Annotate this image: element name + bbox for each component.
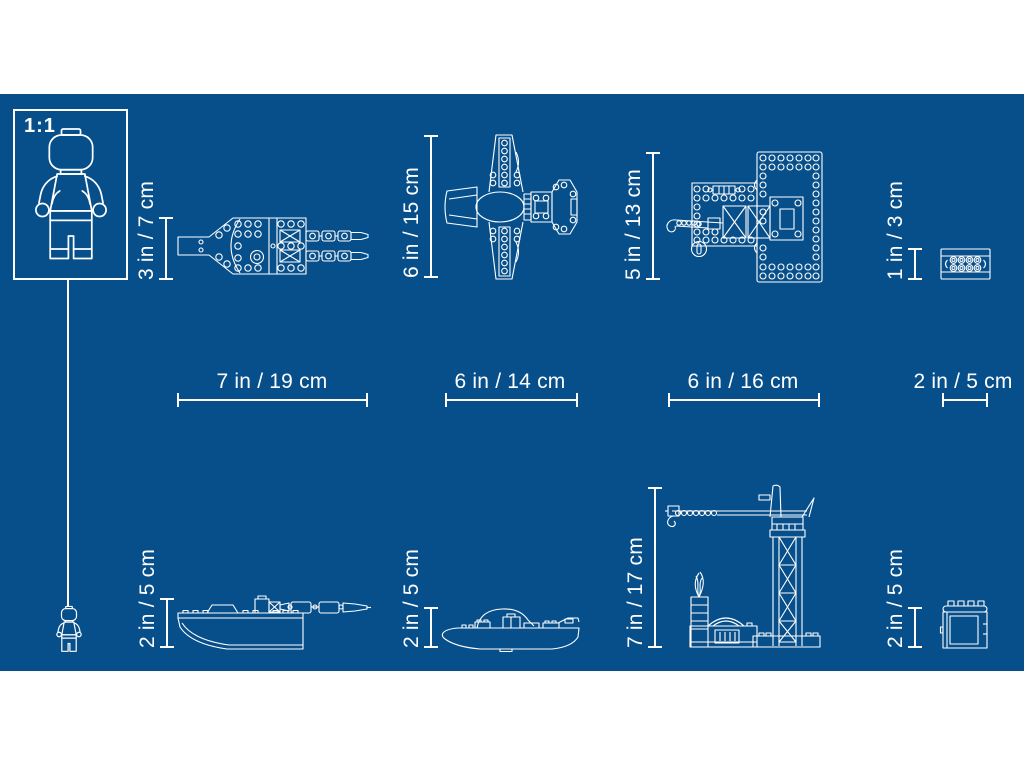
jet-width-measure-line: [445, 393, 578, 407]
crane-height-measure-line: [648, 487, 662, 648]
jet-height-label: 6 in / 15 cm: [399, 167, 425, 278]
brick-width-label: 2 in / 5 cm: [863, 370, 1024, 394]
submarine-height-label: 2 in / 5 cm: [399, 549, 425, 648]
platform-width-measure-line: [668, 393, 820, 407]
jet-width-label: 6 in / 14 cm: [410, 370, 610, 394]
crane-tower-side-view-drawing: [663, 484, 823, 649]
scale-box: 1:1: [13, 109, 128, 280]
jet-plane-top-view-drawing: [443, 132, 578, 282]
minifigure-icon: [32, 127, 110, 267]
crane-height-label: 7 in / 17 cm: [623, 537, 649, 648]
boat-side-view-drawing: [177, 596, 372, 658]
launch-platform-top-view-drawing: [663, 150, 823, 285]
shuttle-width-measure-line: [177, 393, 368, 407]
brick-height-measure-line: [908, 248, 922, 280]
boat-height-measure-line: [160, 598, 174, 648]
submarine-side-view-drawing: [440, 605, 585, 652]
dimensions-diagram: 1:1: [0, 0, 1024, 767]
shuttle-top-view-drawing: [177, 211, 372, 281]
platform-width-label: 6 in / 16 cm: [643, 370, 843, 394]
storage-box-side-view-drawing: [940, 598, 990, 650]
scale-leader-line: [67, 280, 69, 607]
submarine-height-measure-line: [424, 607, 438, 648]
minifigure-small-icon: [55, 606, 83, 654]
jet-height-measure-line: [424, 135, 438, 278]
boat-height-label: 2 in / 5 cm: [135, 549, 161, 648]
brick-width-measure-line: [942, 393, 988, 407]
storage-box-height-label: 2 in / 5 cm: [883, 549, 909, 648]
shuttle-height-label: 3 in / 7 cm: [134, 181, 160, 280]
platform-height-measure-line: [646, 152, 660, 280]
shuttle-height-measure-line: [159, 217, 173, 280]
shuttle-width-label: 7 in / 19 cm: [172, 370, 372, 394]
brick-height-label: 1 in / 3 cm: [883, 181, 909, 280]
storage-box-height-measure-line: [908, 607, 922, 648]
small-brick-top-view-drawing: [939, 247, 992, 281]
platform-height-label: 5 in / 13 cm: [621, 169, 647, 280]
